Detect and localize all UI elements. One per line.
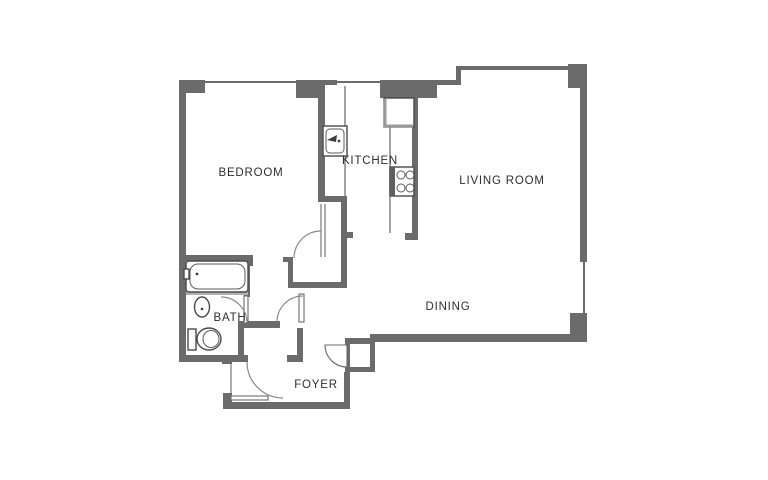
wall-top-living [458, 66, 575, 70]
wall-nub-hall-closet-left [283, 257, 293, 262]
label-living-room: LIVING ROOM [459, 175, 544, 187]
wall-foyer-closet-wall [297, 328, 303, 357]
label-dining: DINING [425, 301, 470, 313]
label-foyer: FOYER [294, 379, 338, 391]
stove-panel [390, 167, 395, 196]
refrigerator-outline [384, 98, 414, 127]
wall-pier-bedroom-kitchen [296, 80, 320, 98]
label-bedroom: BEDROOM [218, 167, 283, 179]
wall-corner-topright [568, 64, 587, 88]
wall-top-kitchen-a [320, 80, 337, 85]
foyer-closet-door-arc [247, 362, 283, 398]
kitchen-drain-dot [338, 140, 341, 143]
hall-door-leaf [299, 294, 304, 322]
wall-bottom-foyer [223, 402, 350, 409]
bathtub-icon [184, 261, 248, 295]
toilet-bowl [197, 328, 221, 350]
refrigerator-icon [384, 98, 414, 127]
kitchen-door-arc [294, 231, 321, 258]
label-bath: BATH [213, 312, 246, 324]
wall-right [580, 86, 587, 262]
toilet-icon [188, 328, 221, 350]
bath-sink-bowl [195, 297, 210, 317]
wall-foyer-closet-bottom-a [235, 355, 248, 362]
wall-left [179, 82, 186, 362]
wall-nub-kitchen-end [405, 233, 418, 240]
toilet-tank [188, 329, 196, 350]
foyer-closet-leaf [231, 396, 268, 400]
room-labels: BEDROOM KITCHEN LIVING ROOM DINING BATH … [213, 155, 544, 391]
label-kitchen: KITCHEN [342, 155, 398, 167]
wall-foyer-closet-bottom-b [287, 355, 303, 362]
wall-entry-closet-bottom [345, 367, 375, 372]
stove-icon [390, 167, 414, 196]
bathtub-drain-dot [196, 273, 199, 276]
floor-plan: BEDROOM KITCHEN LIVING ROOM DINING BATH … [0, 0, 768, 480]
wall-hall-closet-left [288, 258, 293, 288]
bathtub-outline [186, 261, 248, 292]
wall-hall-closet-right [341, 198, 347, 287]
wall-pier-kitchen-living [380, 80, 437, 98]
wall-bedroom-bottom [179, 255, 253, 261]
wall-foyer-closet-left [238, 328, 244, 357]
bath-sink-icon [195, 297, 210, 317]
bathtub-faucet [184, 269, 189, 279]
bath-sink-drain-dot [201, 308, 204, 311]
wall-nub-hall-closet [341, 232, 353, 238]
wall-corner-topleft [179, 80, 205, 93]
kitchen-sink-icon [323, 126, 347, 156]
doors [221, 204, 347, 400]
entry-door-leaf [325, 345, 347, 367]
floor-plan-page: BEDROOM KITCHEN LIVING ROOM DINING BATH … [0, 0, 768, 480]
wall-hall-closet-bottom [288, 282, 347, 288]
wall-foyer-right [344, 372, 350, 406]
wall-bottom-dining [370, 334, 587, 342]
